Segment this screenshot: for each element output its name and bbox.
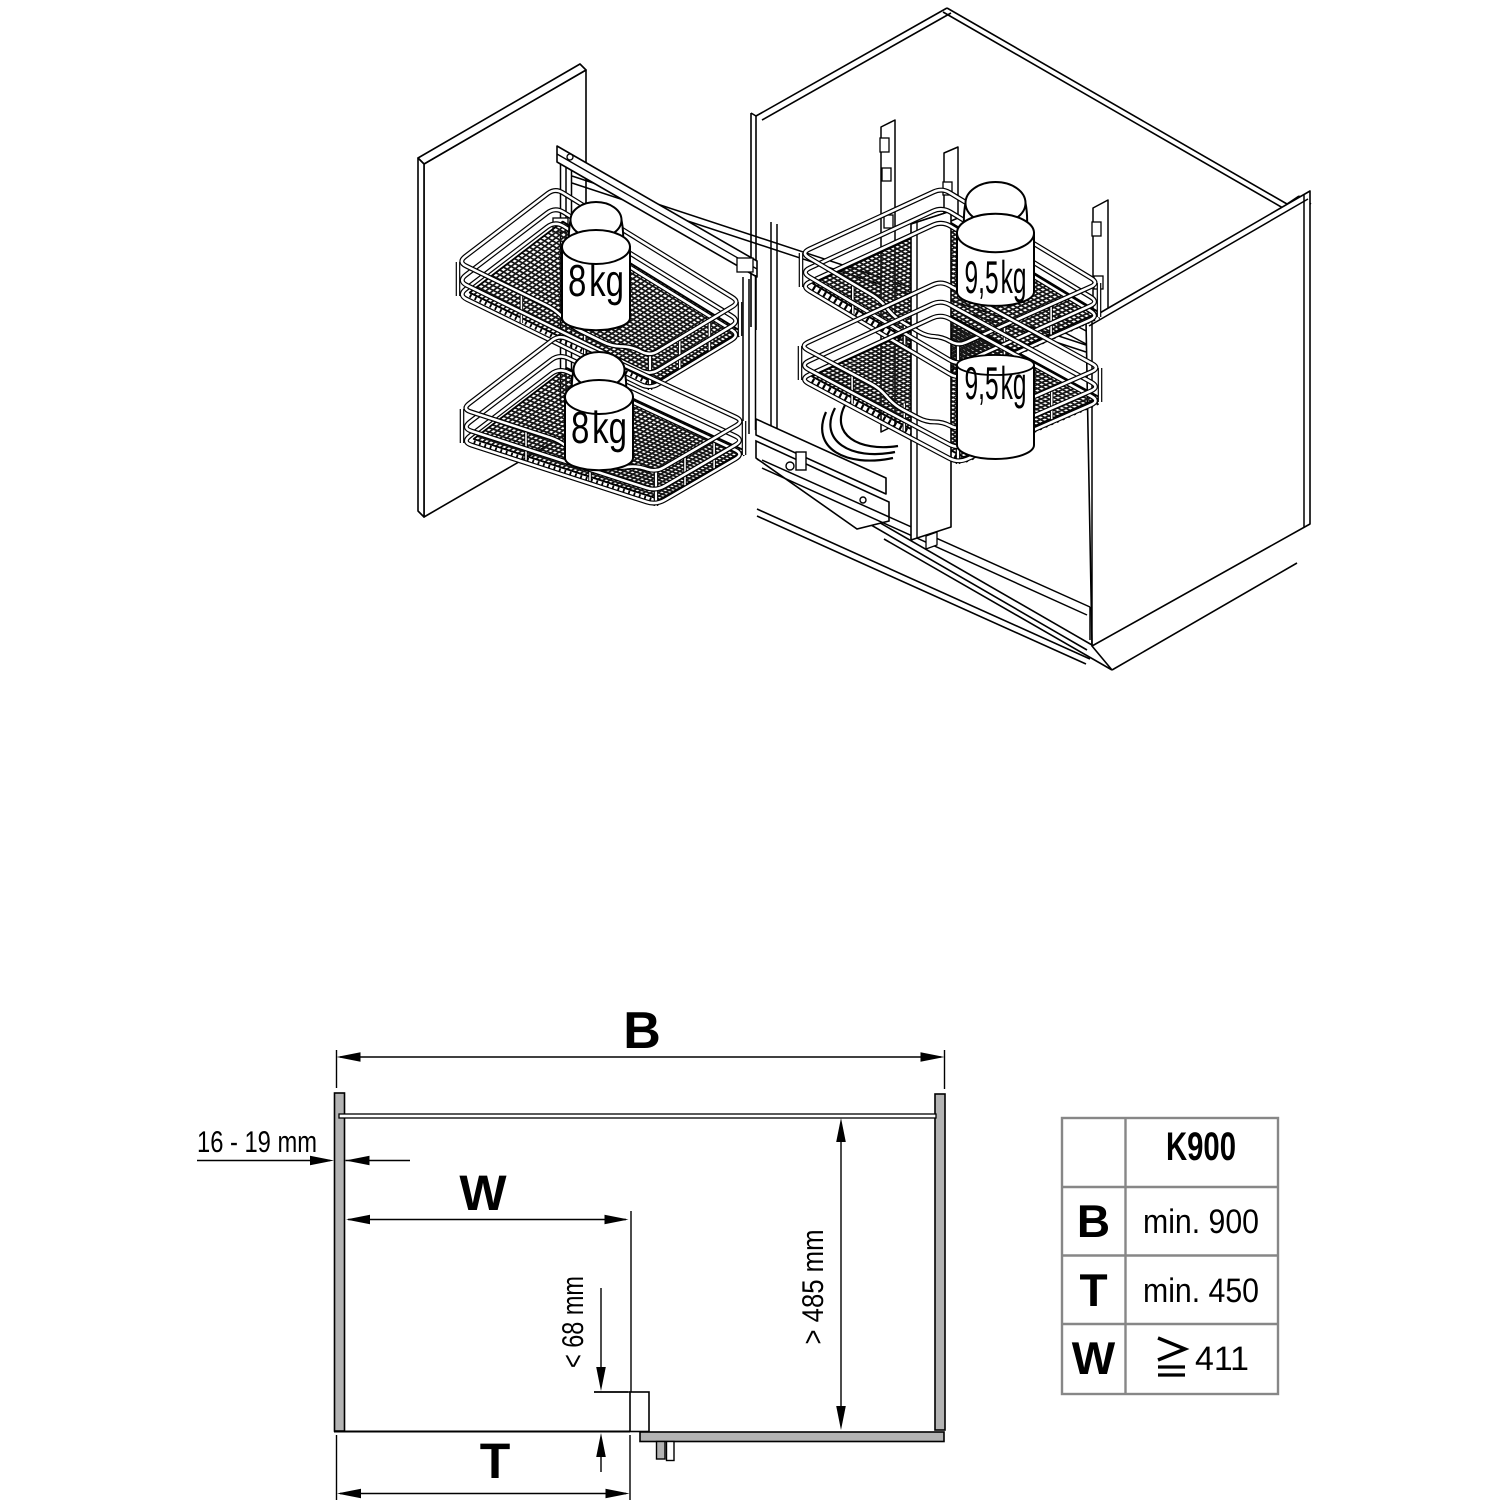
svg-text:min. 900: min. 900	[1143, 1203, 1259, 1241]
svg-text:> 485 mm: > 485 mm	[797, 1230, 830, 1345]
svg-text:T: T	[480, 1433, 511, 1489]
svg-text:9,5 kg: 9,5 kg	[965, 251, 1027, 303]
svg-text:8 kg: 8 kg	[571, 402, 627, 453]
svg-text:B: B	[623, 1002, 661, 1060]
svg-text:W: W	[1072, 1332, 1116, 1384]
svg-text:8 kg: 8 kg	[568, 255, 624, 306]
svg-text:K900: K900	[1166, 1125, 1236, 1169]
svg-text:T: T	[1079, 1264, 1107, 1316]
svg-text:min. 450: min. 450	[1143, 1272, 1259, 1310]
svg-text:16 - 19 mm: 16 - 19 mm	[197, 1126, 317, 1159]
svg-text:9,5 kg: 9,5 kg	[965, 357, 1027, 409]
svg-text:411: 411	[1195, 1340, 1249, 1378]
svg-text:< 68 mm: < 68 mm	[557, 1276, 590, 1368]
svg-text:B: B	[1077, 1195, 1110, 1247]
svg-text:W: W	[459, 1165, 507, 1221]
